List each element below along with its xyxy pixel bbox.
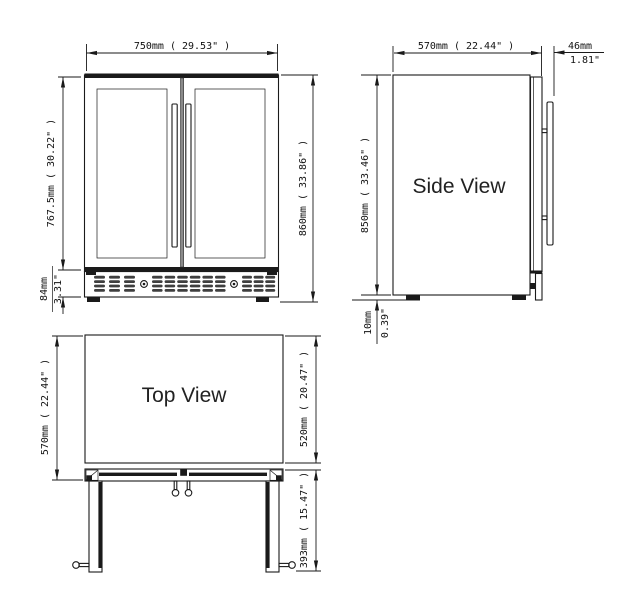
top-view: Top View	[40, 335, 321, 572]
front-right-door-handle	[186, 104, 191, 247]
side-foot-height-in-label: 0.39"	[380, 308, 391, 338]
technical-drawing: 750mm ( 29.53" ) 767.5mm ( 30.22" ) 84mm…	[0, 0, 623, 615]
front-left-door-handle	[172, 104, 177, 247]
front-view: 750mm ( 29.53" ) 767.5mm ( 30.22" ) 84mm…	[39, 41, 318, 314]
side-handle-mount-top	[542, 129, 547, 133]
top-total-depth-label: 570mm ( 22.44" )	[40, 359, 51, 455]
front-door-divider	[181, 78, 184, 267]
side-view-label: Side View	[412, 175, 506, 198]
top-left-door-open	[73, 481, 102, 572]
front-width-dimension: 750mm ( 29.53" )	[87, 41, 278, 71]
side-foot-height-mm-label: 10mm	[363, 311, 374, 335]
side-depth-label: 570mm ( 22.44" )	[418, 41, 514, 52]
top-view-label: Top View	[142, 384, 228, 407]
side-handle-depth-dimension: 46mm 1.81"	[554, 41, 604, 66]
front-base-height-dimension: 84mm 3.31"	[39, 266, 64, 314]
front-width-label: 750mm ( 29.53" )	[134, 41, 230, 52]
side-hinge-block	[531, 283, 536, 289]
top-closed-handle-left	[172, 481, 179, 496]
top-total-depth-dimension: 570mm ( 22.44" )	[40, 336, 83, 480]
front-total-height-dimension: 860mm ( 33.86" )	[280, 75, 318, 302]
front-left-hinge	[86, 272, 96, 276]
front-right-door-glass	[195, 89, 265, 258]
side-height-label: 850mm ( 33.46" )	[360, 137, 371, 233]
top-door-swing-label: 393mm ( 15.47" )	[299, 472, 310, 568]
front-left-foot	[87, 297, 100, 302]
top-left-hinge-bracket	[86, 470, 98, 480]
top-door-swing-dimension: 393mm ( 15.47" )	[285, 470, 321, 571]
front-total-height-label: 860mm ( 33.86" )	[298, 140, 309, 236]
side-height-dimension: 850mm ( 33.46" )	[360, 75, 391, 295]
side-handle-depth-in-label: 1.81"	[570, 55, 600, 66]
side-hinge-bracket	[536, 274, 543, 301]
front-base-height-in-label: 3.31"	[53, 274, 64, 304]
top-left-door-closed	[99, 473, 177, 476]
side-right-foot	[512, 295, 526, 300]
top-right-hinge-bracket	[270, 470, 282, 480]
front-door-bottom-frame	[85, 267, 279, 271]
side-view: Side View 570mm ( 22.44" ) 46mm 1.81" 85…	[352, 41, 604, 344]
top-body-depth-dimension: 520mm ( 20.47" )	[285, 336, 321, 463]
top-body-depth-label: 520mm ( 20.47" )	[299, 351, 310, 447]
vent-grille-left	[94, 276, 135, 292]
front-base-height-mm-label: 84mm	[39, 277, 50, 301]
drawing-canvas: 750mm ( 29.53" ) 767.5mm ( 30.22" ) 84mm…	[0, 0, 623, 615]
vent-grille-center	[152, 276, 226, 292]
side-door-panel	[531, 77, 543, 272]
vent-grille-right	[242, 276, 275, 292]
top-right-door-handle-knob	[289, 562, 296, 569]
side-foot-height-dimension: 10mm 0.39"	[352, 300, 420, 344]
side-handle-depth-mm-label: 46mm	[568, 41, 592, 52]
front-left-door-glass	[97, 89, 167, 258]
front-right-foot	[256, 297, 269, 302]
top-left-door-handle-knob	[73, 562, 80, 569]
front-base-panel	[85, 272, 279, 298]
screw-cap-right	[231, 281, 238, 288]
top-center-hinge	[180, 469, 187, 476]
front-door-height-dimension: 767.5mm ( 30.22" )	[46, 77, 81, 297]
front-top-frame	[85, 74, 279, 79]
front-right-hinge	[267, 272, 277, 276]
side-left-foot	[406, 295, 420, 300]
side-door-handle	[547, 102, 553, 245]
top-closed-handle-right	[185, 481, 192, 496]
front-door-height-label: 767.5mm ( 30.22" )	[46, 119, 57, 227]
side-handle-mount-bottom	[542, 216, 547, 220]
screw-cap-left	[141, 281, 148, 288]
top-right-door-open	[266, 481, 295, 572]
top-right-door-closed	[189, 473, 267, 476]
